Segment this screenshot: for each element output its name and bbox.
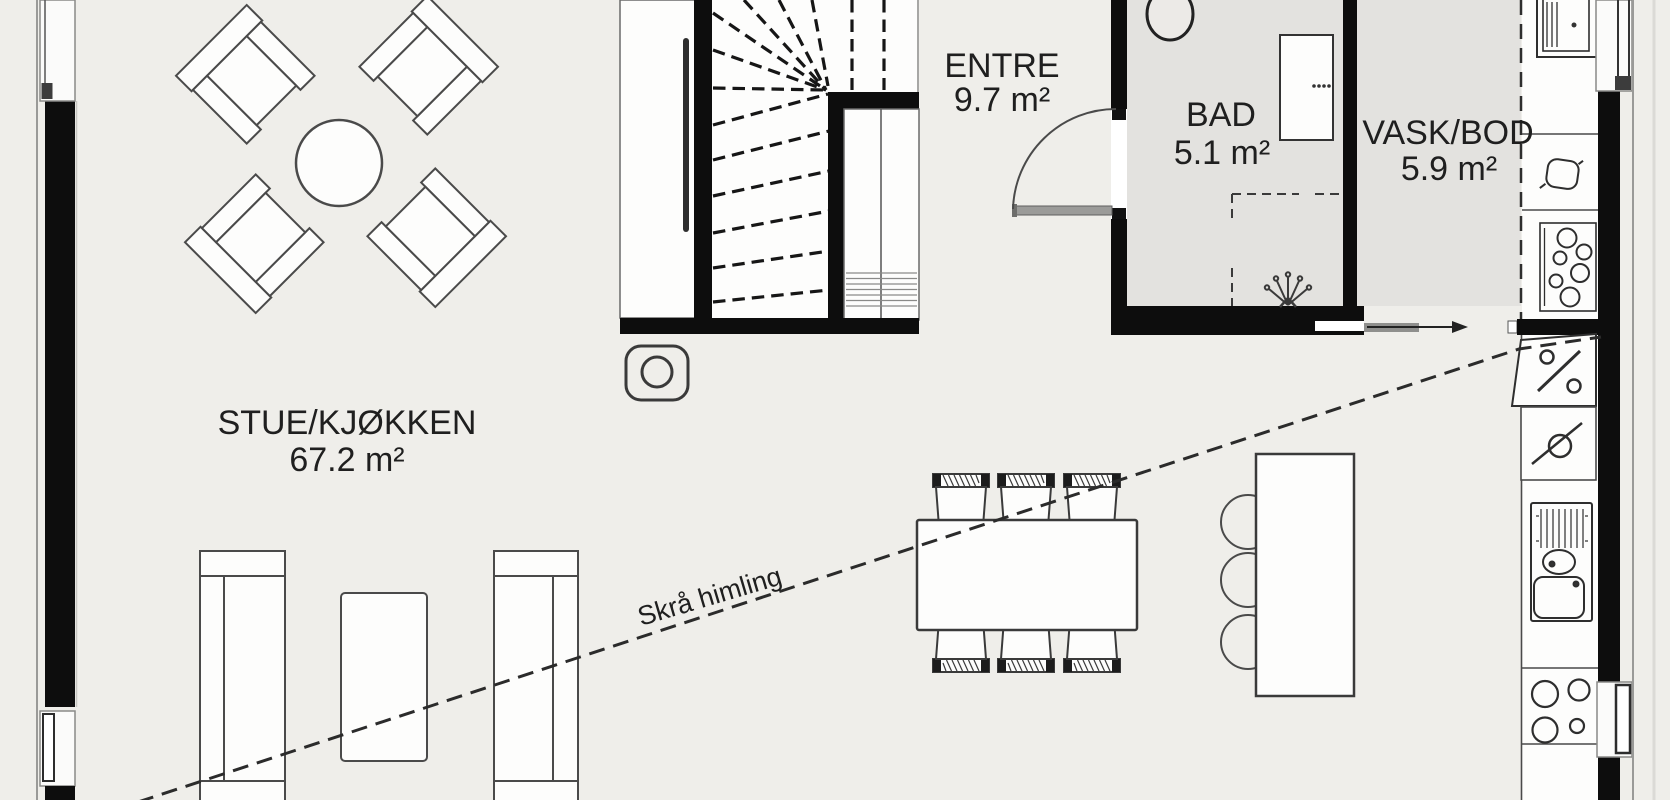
svg-text:67.2 m²: 67.2 m² [289, 441, 404, 479]
svg-text:BAD: BAD [1186, 96, 1256, 134]
svg-text:VASK/BOD: VASK/BOD [1362, 114, 1533, 152]
svg-text:5.1 m²: 5.1 m² [1174, 134, 1270, 172]
svg-text:9.7 m²: 9.7 m² [954, 81, 1050, 119]
svg-text:ENTRE: ENTRE [944, 47, 1059, 85]
svg-text:5.9 m²: 5.9 m² [1401, 150, 1497, 188]
svg-text:STUE/KJØKKEN: STUE/KJØKKEN [218, 404, 477, 442]
